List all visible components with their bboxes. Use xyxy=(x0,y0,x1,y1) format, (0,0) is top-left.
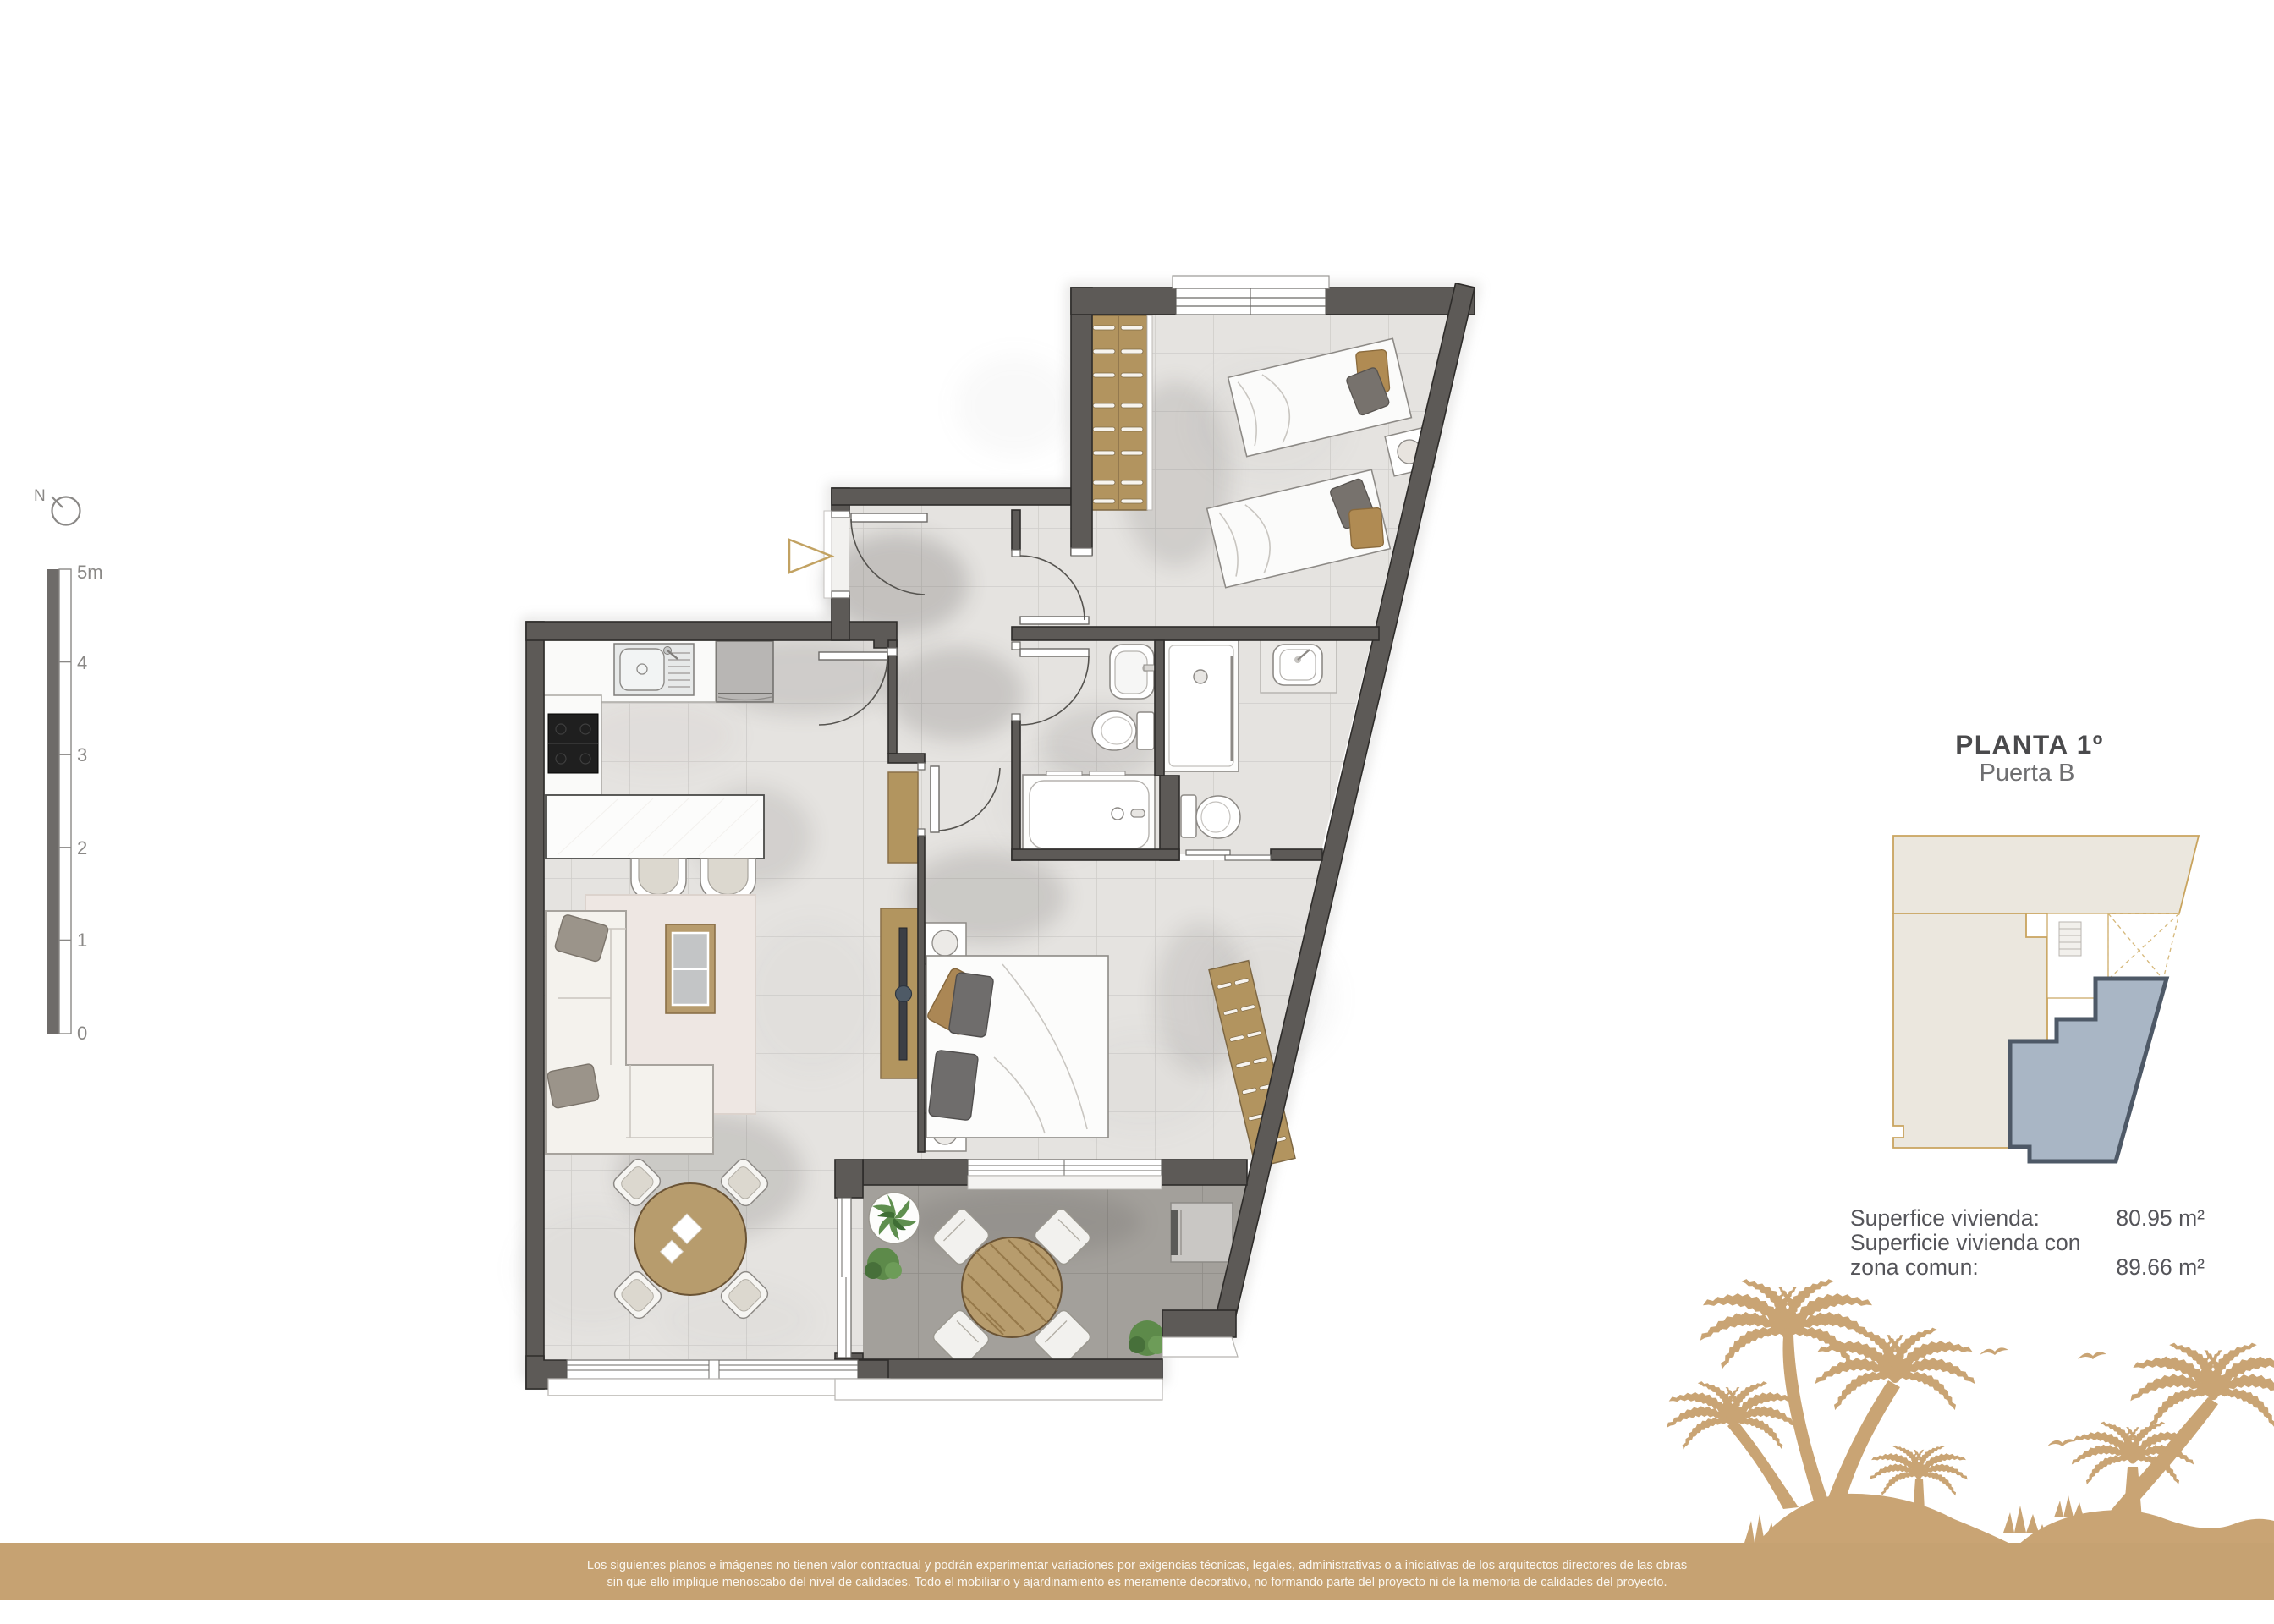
svg-text:PLANTA 1º: PLANTA 1º xyxy=(1955,729,2104,760)
svg-text:Superficie vivienda con: Superficie vivienda con xyxy=(1850,1230,2081,1255)
svg-text:0: 0 xyxy=(77,1023,87,1044)
svg-text:Puerta B: Puerta B xyxy=(1980,760,2075,787)
svg-text:N: N xyxy=(34,487,46,505)
svg-text:Los siguientes planos e imágen: Los siguientes planos e imágenes no tien… xyxy=(587,1559,1687,1572)
svg-text:5m: 5m xyxy=(77,562,103,583)
svg-text:Superfice vivienda:: Superfice vivienda: xyxy=(1850,1205,2040,1231)
svg-text:89.66 m²: 89.66 m² xyxy=(2116,1254,2205,1280)
svg-text:3: 3 xyxy=(77,744,87,765)
svg-text:zona comun:: zona comun: xyxy=(1850,1254,1979,1280)
svg-text:2: 2 xyxy=(77,837,87,859)
svg-text:sin que ello implique menoscab: sin que ello implique menoscabo del nive… xyxy=(607,1576,1667,1589)
svg-text:4: 4 xyxy=(77,652,87,673)
svg-text:1: 1 xyxy=(77,930,87,951)
svg-text:80.95 m²: 80.95 m² xyxy=(2116,1205,2205,1231)
